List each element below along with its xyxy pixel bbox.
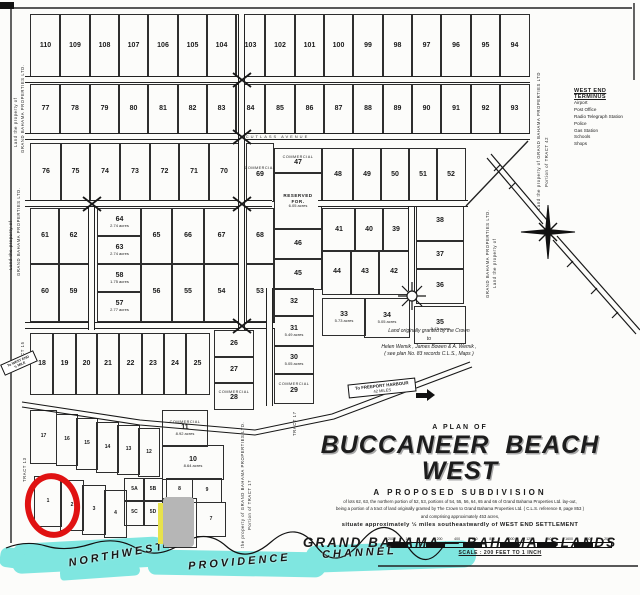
lot-cell: 4 (104, 490, 127, 538)
scale-tick: 1200 (526, 537, 534, 541)
terminus-item: Post Office (574, 107, 638, 114)
margin-text: GRAND BAHAMA PROPERTIES LTD. (20, 55, 25, 153)
terminus-item: Shops (574, 141, 638, 148)
road (238, 14, 245, 140)
lot-cell: 81 (147, 84, 179, 135)
lot-number: 68 (256, 232, 264, 240)
scale-segment (519, 543, 538, 547)
lot-cell: 632.74 acres (97, 235, 142, 265)
lot-cell: 15 (76, 418, 98, 470)
terminus-item: Gas Station (574, 128, 638, 135)
lot-cell: 5A (124, 478, 145, 502)
scale-bar: 2001000200400600800100012001400160018002… (388, 537, 612, 556)
lot-cell: 87 (323, 84, 354, 135)
scale-tick: 200 (437, 537, 443, 541)
lot-cell: 104 (206, 14, 237, 78)
lot-cell: 83 (206, 84, 237, 135)
lot-number: 86 (306, 105, 314, 113)
lot-cell: 17 (30, 410, 57, 464)
lot-cell: 88 (352, 84, 384, 135)
road-label: CUTLASS AVENUE (246, 134, 310, 139)
lot-cell: 16 (56, 414, 78, 466)
lot-number: 28 (230, 394, 238, 402)
lot-number: 41 (335, 226, 343, 234)
lot-number: 65 (153, 232, 161, 240)
lot-cell: 5C (124, 500, 145, 526)
lot-cell: 305.05 acres (274, 345, 314, 375)
crown-note-line: Land originally granted by the Crown (348, 328, 510, 336)
lot-acreage: 5.05 acres (285, 362, 304, 367)
lot-acreage: 2.74 acres (110, 252, 129, 257)
corner-mark (0, 2, 14, 9)
lot-number: 43 (361, 268, 369, 276)
plan-of-label: A PLAN OF (288, 424, 632, 431)
lot-cell: 20 (75, 333, 98, 395)
lot-number: 55 (184, 288, 192, 296)
lot-acreage: 2.74 acres (110, 224, 129, 229)
lot-number: 66 (184, 232, 192, 240)
lot-number: 102 (274, 42, 286, 50)
lot-number: 88 (364, 105, 372, 113)
lot-number: 48 (334, 171, 342, 179)
subdivision-boundary (466, 141, 528, 206)
scale-segment (593, 543, 612, 547)
lot-number: 99 (364, 42, 372, 50)
lot-cell: 581.75 acres (97, 263, 142, 293)
lot-number: 15 (84, 441, 90, 447)
scale-tick: 1000 (507, 537, 515, 541)
terminus-item: Radio Telegraph Station (574, 114, 638, 121)
lot-number: 74 (101, 168, 109, 176)
lot-number: 101 (304, 42, 316, 50)
lot-number: 50 (391, 171, 399, 179)
lot-cell: 19 (52, 333, 77, 395)
lot-cell: 39 (382, 208, 410, 252)
road (408, 207, 415, 291)
lot-number: 110 (40, 42, 51, 50)
lot-number: 39 (392, 226, 400, 234)
lot-number: 70 (220, 168, 228, 176)
scale-segment (574, 543, 593, 547)
lot-number: 36 (436, 282, 444, 290)
lot-number: 5C (131, 510, 137, 516)
lot-number: 104 (216, 42, 228, 50)
scale-tick: 2000 (604, 537, 612, 541)
west-end-road (487, 154, 640, 334)
margin-text: TRACT 13 (22, 446, 27, 482)
lot-number: 8 (178, 487, 181, 493)
lot-number: 93 (511, 105, 519, 113)
lot-number: 40 (365, 226, 373, 234)
lot-number: 49 (363, 171, 371, 179)
lot-number: 45 (294, 270, 302, 278)
scale-ticks: 2001000200400600800100012001400160018002… (388, 537, 612, 541)
lot-cell: 37 (416, 240, 464, 270)
lot-cell: 27 (214, 356, 254, 384)
lot-number: 96 (452, 42, 460, 50)
terminus-items: AirportPost OfficeRadio Telegraph Statio… (574, 100, 638, 148)
lot-number: 69 (256, 171, 264, 179)
reserved-label: 6.05 acres (289, 204, 308, 209)
lot-number: 77 (42, 105, 50, 113)
lot-acreage: 2.77 acres (110, 308, 129, 313)
lot-cell: 65 (140, 208, 173, 265)
lot-cell: 44 (322, 250, 352, 295)
lot-cell: 5B (143, 478, 163, 502)
lot-number: 103 (245, 42, 257, 50)
lot-cell: 315.49 acres (274, 315, 314, 347)
lot-number: 26 (230, 340, 238, 348)
lot-number: 47 (294, 159, 302, 167)
lot-number: 5D (150, 510, 156, 516)
scale-segment (500, 543, 519, 547)
fine-print-1: of lots 62, 63, the northern portion of … (288, 499, 632, 505)
lot-cell: 40 (354, 208, 384, 252)
lot-cell: 67 (203, 208, 240, 265)
lot-cell: 75 (60, 143, 91, 202)
lot-acreage: 8.92 acres (176, 432, 195, 437)
terminus-item: Schools (574, 134, 638, 141)
lot-number: 5A (131, 487, 137, 493)
scale-tick: 0 (423, 537, 425, 541)
scale-tick: 1400 (546, 537, 554, 541)
lot-cell: 86 (294, 84, 325, 135)
lot-cell: COMMERCIAL29 (274, 373, 314, 404)
lot-number: 109 (69, 42, 81, 50)
lot-cell: 48 (322, 148, 354, 202)
lot-number: 59 (70, 288, 78, 296)
scale-segment (482, 543, 501, 547)
lot-cell: 43 (350, 250, 380, 295)
lot-number: 91 (452, 105, 460, 113)
terminus-header: WEST END TERMINUS (574, 88, 638, 100)
fine-print-3: and comprising approximately 453 acres, (288, 514, 632, 520)
margin-text: GRAND BAHAMA PROPERTIES LTD. (16, 148, 21, 276)
lot-number: 44 (333, 268, 341, 276)
lot-number: 54 (218, 288, 226, 296)
lot-cell: 93 (499, 84, 530, 135)
lot-number: 108 (99, 42, 111, 50)
lot-cell: 106 (147, 14, 179, 78)
scale-tick: 600 (472, 537, 478, 541)
road (318, 200, 468, 207)
lot-cell: 24 (163, 333, 187, 395)
scale-tick: 100 (406, 537, 412, 541)
lot-cell: 572.77 acres (97, 291, 142, 322)
scale-tick: 1800 (585, 537, 593, 541)
lot-number: 19 (61, 360, 69, 368)
lot-cell: 72 (149, 143, 180, 202)
lot-number: 105 (187, 42, 199, 50)
scale-segment (463, 543, 482, 547)
lot-cell: 36 (416, 268, 464, 304)
terminus-item: Airport (574, 100, 638, 107)
lot-cell: 61 (30, 208, 60, 265)
crown-note-line: ( see plan No. 83 records C.L.S., Maps ) (348, 351, 510, 359)
lot-number: 5B (150, 487, 156, 493)
crown-note-line: to (348, 336, 510, 344)
scale-segment (445, 543, 464, 547)
lot-cell: 51 (408, 148, 438, 202)
lot-number: 84 (247, 105, 255, 113)
lot-cell: 96 (440, 14, 472, 78)
terminus-item: Police (574, 121, 638, 128)
lot-cell: 100 (323, 14, 354, 78)
page-title: BUCCANEER BEACH WEST (288, 432, 632, 485)
margin-text: Land the property of (13, 62, 18, 147)
scale-caption: SCALE : 200 FEET TO 1 INCH (388, 550, 612, 556)
lot-cell: 85 (264, 84, 296, 135)
road (88, 207, 95, 330)
lot-cell: 101 (294, 14, 325, 78)
road (25, 76, 530, 83)
lot-number: 83 (218, 105, 226, 113)
lot-number: 67 (218, 232, 226, 240)
lot-number: 75 (72, 168, 80, 176)
margin-text: the property of GRAND BAHAMA PROPERTIES … (240, 436, 245, 548)
lot-number: 13 (126, 447, 132, 453)
lot-cell: 92 (470, 84, 501, 135)
arrow-shaft (416, 393, 427, 398)
margin-text: TRACT 17 (292, 404, 297, 436)
lot-cell: 42 (378, 250, 410, 295)
lot-number: 97 (423, 42, 431, 50)
lot-cell: 26 (214, 330, 254, 358)
lot-number: 73 (131, 168, 139, 176)
plat-map: A PLAN OF BUCCANEER BEACH WEST A PROPOSE… (0, 0, 640, 595)
lot-number: 46 (294, 240, 302, 248)
road: CUTLASS AVENUE (25, 133, 530, 140)
lot-cell: 79 (89, 84, 120, 135)
lot-number: 90 (423, 105, 431, 113)
situate-line: situate approximately ½ miles southeastw… (288, 522, 632, 528)
lot-number: 12 (146, 450, 152, 456)
lot-cell: 105 (177, 14, 208, 78)
west-end-terminus-block: WEST END TERMINUS AirportPost OfficeRadi… (574, 88, 638, 148)
scale-tick: 1600 (565, 537, 573, 541)
scale-segment (537, 543, 556, 547)
lot-cell: 99 (352, 14, 384, 78)
lot-number: 17 (41, 434, 47, 440)
scale-tick: 200 (388, 537, 394, 541)
margin-text: GRAND BAHAMA PROPERTIES LTD. (485, 190, 490, 298)
lot-cell: COMMERCIAL47 (274, 148, 322, 174)
lot-number: 92 (482, 105, 490, 113)
lot-cell: 59 (58, 263, 89, 322)
scale-tick: 800 (489, 537, 495, 541)
margin-text: Portion of TRACT 17 (247, 446, 252, 530)
lot-cell: 78 (59, 84, 91, 135)
lot-number: 7 (210, 517, 213, 523)
lot-number: 71 (190, 168, 198, 176)
lot-cell: 107 (118, 14, 149, 78)
fine-print-2: being a portion of a tract of land origi… (288, 506, 632, 512)
lot-cell: 23 (141, 333, 165, 395)
road (238, 140, 245, 330)
lot-cell: 3 (82, 485, 106, 535)
lot-number: 56 (153, 288, 161, 296)
lot-number: 37 (436, 251, 444, 259)
lot-cell: 98 (382, 14, 413, 78)
lot-number: 87 (335, 105, 343, 113)
lot-number: 22 (127, 360, 135, 368)
lot-cell: 70 (208, 143, 240, 202)
lot-number: 38 (436, 217, 444, 225)
lot-cell: 110 (30, 14, 61, 78)
lot-cell: 41 (322, 208, 356, 252)
margin-text: Portion of TRACT 42 (544, 95, 549, 187)
lot-number: 81 (159, 105, 167, 113)
lot-cell: 642.74 acres (97, 208, 142, 237)
lot-number: 107 (128, 42, 140, 50)
lot-number: 21 (104, 360, 112, 368)
lot-number: 89 (394, 105, 402, 113)
lot-cell: 82 (177, 84, 208, 135)
lot-number: 29 (290, 387, 298, 395)
lot-cell: 73 (119, 143, 151, 202)
lot-number: 32 (290, 298, 298, 306)
lot-number: 42 (390, 268, 398, 276)
lot-cell: 94 (499, 14, 530, 78)
lot-cell: 76 (30, 143, 62, 202)
lot-cell: 109 (59, 14, 91, 78)
lot-cell: 7 (196, 502, 226, 537)
lot-cell: 18 (30, 333, 54, 395)
lot-number: 85 (276, 105, 284, 113)
lot-number: 23 (149, 360, 157, 368)
lot-number: 27 (230, 366, 238, 374)
lot-acreage: 8.64 acres (184, 464, 203, 469)
lot-cell: 89 (382, 84, 413, 135)
lot-number: 53 (256, 288, 264, 296)
freeport-arrow-icon (416, 389, 435, 401)
lot-cell: 45 (274, 258, 322, 290)
lot-number: 20 (83, 360, 91, 368)
lot-cell: 49 (352, 148, 382, 202)
scale-segment (556, 543, 575, 547)
lot-cell: 12 (138, 428, 160, 477)
lot-cell: 46 (274, 228, 322, 260)
lot-number: 25 (194, 360, 202, 368)
lot-cell: 66 (171, 208, 205, 265)
lot-cell: 32 (274, 288, 314, 317)
lot-number: 106 (157, 42, 169, 50)
lot-number: 76 (42, 168, 50, 176)
lot-number: 78 (71, 105, 79, 113)
lot-number: 98 (394, 42, 402, 50)
lot-number: 18 (38, 360, 46, 368)
lot-cell: 50 (380, 148, 410, 202)
title-block: A PLAN OF BUCCANEER BEACH WEST A PROPOSE… (288, 424, 632, 550)
lot-acreage: 5.05 acres (378, 320, 397, 325)
lot-acreage: 5.73 acres (335, 319, 354, 324)
arrow-head (427, 389, 435, 401)
lot-number: 52 (447, 171, 455, 179)
margin-text: Land the property of (8, 155, 13, 270)
scale-segment (408, 543, 427, 547)
crown-note-line: Helen Wemik , James Bowen & A. Wemik , (348, 344, 510, 352)
lot-number: 79 (101, 105, 109, 113)
lot-cell: 97 (411, 14, 442, 78)
lot-cell: 108.64 acres (162, 445, 224, 480)
lot-cell: 55 (171, 263, 205, 322)
lot-number: 95 (482, 42, 490, 50)
lot-number: 61 (41, 232, 49, 240)
lot-cell: 21 (96, 333, 120, 395)
lot-number: 14 (105, 445, 111, 451)
lot-cell: 77 (30, 84, 61, 135)
lot-cell: 95 (470, 14, 501, 78)
lot-cell: 102 (264, 14, 296, 78)
margin-text: Land the property of (492, 196, 497, 288)
lot-cell: 56 (140, 263, 173, 322)
lot-number: 51 (419, 171, 427, 179)
road (266, 288, 273, 406)
lot-cell: 108 (89, 14, 120, 78)
lot-cell: 90 (411, 84, 442, 135)
lot-cell: 22 (118, 333, 143, 395)
lot-acreage: 1.75 acres (110, 280, 129, 285)
lot-cell: 80 (118, 84, 149, 135)
lot-cell: 74 (89, 143, 121, 202)
lot-cell: 62 (58, 208, 89, 265)
lot-number: 16 (64, 437, 70, 443)
lot-cell: 68 (246, 208, 274, 265)
margin-text: Land the property of GRAND BAHAMA PROPER… (536, 82, 541, 210)
lot-cell: COMMERCIAL118.92 acres (162, 410, 208, 447)
lot-number: 4 (114, 511, 117, 517)
lot-cell: 52 (436, 148, 466, 202)
subtitle: A PROPOSED SUBDIVISION (288, 488, 632, 497)
lot-number: 72 (161, 168, 169, 176)
lot-number: 9 (206, 488, 209, 494)
lot-number: 94 (511, 42, 519, 50)
scale-tick: 400 (454, 537, 460, 541)
lot-number: 62 (70, 232, 78, 240)
lot-cell: 25 (185, 333, 210, 395)
lot-number: 100 (333, 42, 345, 50)
lot-cell: 13 (117, 425, 140, 475)
crown-grant-note: Land originally granted by the CrowntoHe… (348, 328, 510, 359)
lot-number: 80 (130, 105, 138, 113)
lot-cell: COMMERCIAL69 (246, 143, 274, 202)
scale-bar-segments (388, 542, 612, 548)
lot-acreage: 5.49 acres (285, 333, 304, 338)
compass-rose-icon (521, 205, 575, 259)
lot-number: 82 (189, 105, 197, 113)
lot-cell: COMMERCIAL28 (214, 382, 254, 410)
lot-number: 24 (171, 360, 179, 368)
lot-number: 60 (41, 288, 49, 296)
lot-number: 3 (93, 507, 96, 513)
lot-cell: 71 (178, 143, 210, 202)
lot-cell: 60 (30, 263, 60, 322)
grey-redaction-patch (163, 497, 194, 547)
reserved-parcel: RESERVEDFOR.6.05 acres (274, 172, 322, 230)
freeport-harbour-sign: To FREEPORT HARBOUR 42 MILES (347, 377, 416, 398)
lot-cell: 91 (440, 84, 472, 135)
lot-cell: 54 (203, 263, 240, 322)
scale-segment (426, 543, 445, 547)
road (25, 200, 272, 207)
lot-cell: 14 (96, 422, 119, 473)
